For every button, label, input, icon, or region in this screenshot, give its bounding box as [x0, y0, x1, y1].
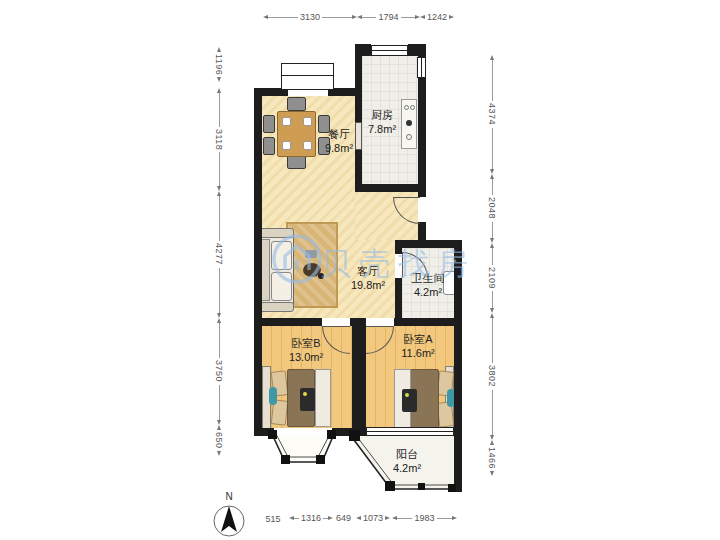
dim-left-1: 1196 [213, 47, 225, 88]
watermark-text: 贝壳找房 [320, 243, 476, 285]
wall-segment [352, 318, 366, 428]
dim-top-2: 1794 [357, 12, 420, 22]
kitchen-sliding-door [355, 122, 362, 150]
wall-segment [418, 78, 426, 197]
dining-chair [287, 155, 306, 169]
window-kitchen-top [371, 45, 408, 56]
plate [303, 141, 312, 150]
dim-right-1: 4374 [486, 55, 498, 174]
wall-segment [358, 184, 420, 192]
room-area: 7.8m² [368, 122, 396, 136]
dim-bottom-3: 1073 [356, 513, 392, 523]
dim-bottom-515: 515 [258, 514, 288, 524]
bay-window-outer-line [272, 434, 334, 462]
wall-segment [418, 44, 426, 58]
room-label-balcony: 阳台 4.2m² [393, 447, 421, 476]
bed-sheet [315, 369, 331, 427]
dim-top-3: 1242 [420, 12, 457, 22]
room-area: 4.2m² [393, 461, 421, 475]
wall-segment [254, 88, 262, 436]
room-name: 餐厅 [325, 127, 353, 141]
dim-right-4: 3802 [486, 313, 498, 440]
dim-bottom-4: 1983 [392, 513, 457, 523]
wall-segment [254, 428, 274, 436]
dim-left-2: 3118 [213, 88, 225, 191]
room-area: 11.6m² [401, 346, 434, 360]
compass-north-label: N [221, 491, 237, 502]
floorplan-canvas: 贝壳找房 餐厅 9.8m² 厨房 7.8m² 客厅 19.8m² 卫生间 4.2… [0, 0, 720, 540]
compass-needle [221, 506, 237, 532]
dining-chair [287, 97, 306, 111]
bed-cushion-teal [269, 387, 277, 405]
window-kitchen-right [417, 57, 426, 78]
dim-left-4: 3750 [213, 318, 225, 425]
dim-right-5: 1466 [486, 440, 498, 488]
room-name: 卧室A [401, 332, 434, 346]
dim-right-3: 2109 [486, 243, 498, 313]
room-area: 13.0m² [289, 350, 323, 364]
tv-indicator-dot [405, 393, 409, 397]
stove-burner-icon [404, 105, 409, 110]
room-label-bedroom-a: 卧室A 11.6m² [401, 332, 434, 361]
dining-chair [263, 137, 275, 155]
sofa-armrest [260, 228, 294, 238]
wall-post [418, 483, 425, 490]
wall-post [281, 455, 290, 464]
sofa-back [261, 239, 270, 301]
tv-on-bed-bench [300, 388, 315, 411]
stove-burner-icon [410, 105, 415, 110]
room-area: 4.2m² [412, 285, 445, 299]
tv-on-bed-bench [402, 389, 417, 412]
dining-chair [263, 115, 275, 133]
dim-left-3: 4277 [213, 191, 225, 318]
wall-post [316, 455, 325, 464]
tv-indicator-dot [303, 392, 307, 396]
wall-segment [394, 318, 454, 326]
sink-drain-icon [406, 120, 412, 126]
room-label-kitchen: 厨房 7.8m² [368, 108, 396, 137]
room-name: 阳台 [393, 447, 421, 461]
sofa-armrest [260, 302, 294, 312]
balcony-window-line [354, 440, 390, 488]
bay-window-inner-line [276, 434, 330, 457]
balcony-window-line [358, 438, 393, 484]
window-bedroom-a-balcony [366, 427, 454, 436]
dim-bottom-2: 649 [334, 513, 356, 523]
room-name: 厨房 [368, 108, 396, 122]
bay-window-floor [274, 436, 332, 461]
dim-bottom-1: 1316 [289, 513, 333, 523]
room-area: 9.8m² [325, 141, 353, 155]
wall-segment [254, 318, 322, 326]
sofa-cushion [271, 241, 292, 270]
plate [282, 141, 291, 150]
wall-post [385, 481, 395, 491]
wall-post [355, 44, 371, 56]
plate [303, 117, 312, 126]
room-label-dining: 餐厅 9.8m² [325, 127, 353, 156]
stove-burner-icon [406, 134, 412, 140]
wall-segment [454, 436, 462, 492]
sofa-cushion [271, 272, 292, 301]
bay-window-dining [281, 63, 334, 90]
room-label-bedroom-b: 卧室B 13.0m² [289, 336, 323, 365]
compass-circle [214, 506, 244, 536]
living-decor [305, 250, 317, 258]
wall-segment [332, 428, 366, 436]
plate [282, 117, 291, 126]
dim-top-1: 3130 [263, 12, 357, 22]
dim-right-2: 2048 [486, 174, 498, 243]
dim-left-5: 650 [213, 425, 225, 462]
room-name: 卧室B [289, 336, 323, 350]
